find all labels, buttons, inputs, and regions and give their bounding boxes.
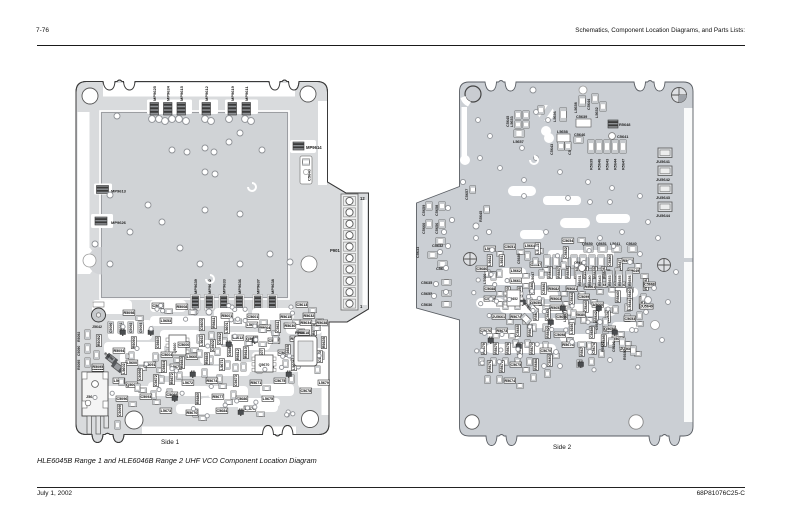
svg-text:L5660: L5660 [187, 355, 197, 359]
svg-text:Q5660: Q5660 [173, 343, 177, 354]
svg-text:12: 12 [360, 196, 365, 201]
svg-text:MP9639: MP9639 [193, 278, 198, 294]
svg-text:R5008: R5008 [176, 305, 187, 309]
svg-text:L5653: L5653 [510, 116, 514, 127]
svg-text:L5661: L5661 [511, 279, 521, 283]
svg-text:JU5642: JU5642 [656, 177, 671, 182]
svg-text:R5646: R5646 [598, 159, 602, 170]
svg-text:R5681: R5681 [567, 287, 578, 291]
svg-text:R5634: R5634 [300, 321, 312, 325]
svg-text:R5663: R5663 [180, 357, 184, 368]
svg-text:R5653: R5653 [608, 275, 612, 286]
svg-text:C5698: C5698 [555, 333, 566, 337]
svg-text:R5675: R5675 [494, 343, 498, 354]
svg-text:MP9615: MP9615 [179, 85, 184, 101]
svg-text:C5636: C5636 [421, 303, 432, 307]
svg-text:C5685: C5685 [517, 253, 521, 264]
svg-text:R5615: R5615 [280, 315, 291, 319]
svg-text:C5646: C5646 [574, 133, 585, 137]
svg-text:R5095: R5095 [93, 365, 104, 369]
svg-text:C5640: C5640 [626, 242, 637, 246]
svg-text:C5641: C5641 [617, 134, 629, 139]
svg-text:C5665: C5665 [516, 325, 520, 336]
svg-text:L5601: L5601 [225, 322, 229, 332]
svg-text:C5639: C5639 [576, 115, 587, 119]
svg-text:R5092: R5092 [97, 335, 101, 346]
svg-text:C5604: C5604 [161, 353, 173, 357]
svg-text:C5680: C5680 [608, 255, 612, 266]
svg-text:R5612: R5612 [236, 349, 240, 360]
svg-text:L5600: L5600 [127, 361, 137, 365]
svg-text:R5611: R5611 [212, 317, 216, 328]
svg-text:C5090: C5090 [77, 346, 81, 356]
svg-text:C5651: C5651 [505, 245, 516, 249]
svg-text:MP9613: MP9613 [111, 189, 127, 194]
svg-text:C5660: C5660 [156, 337, 160, 348]
svg-text:Side 1: Side 1 [161, 439, 180, 446]
svg-text:R5677: R5677 [212, 395, 223, 399]
svg-text:MP9638: MP9638 [270, 278, 275, 294]
svg-text:MP9632: MP9632 [207, 278, 212, 294]
svg-text:C5095: C5095 [138, 369, 142, 380]
svg-text:R5670: R5670 [530, 343, 534, 354]
svg-text:R5656: R5656 [628, 275, 632, 286]
svg-text:C5644: C5644 [587, 98, 591, 110]
svg-text:C5601: C5601 [247, 315, 258, 319]
svg-text:JU5643: JU5643 [656, 195, 671, 200]
svg-text:C5660: C5660 [422, 223, 426, 234]
svg-text:MP9612: MP9612 [204, 85, 209, 101]
svg-text:MP9633: MP9633 [222, 278, 227, 294]
svg-text:R5676: R5676 [488, 361, 492, 372]
svg-text:R5644: R5644 [614, 158, 618, 170]
svg-text:C5689: C5689 [590, 327, 594, 338]
svg-text:C5662: C5662 [218, 333, 222, 344]
svg-text:C5632: C5632 [432, 244, 443, 248]
svg-text:L5602: L5602 [122, 363, 126, 373]
svg-text:R5655: R5655 [618, 275, 622, 286]
svg-text:R5639: R5639 [590, 159, 594, 170]
svg-text:MP9614: MP9614 [306, 145, 322, 150]
svg-text:JU5644: JU5644 [656, 213, 671, 218]
svg-text:L5653: L5653 [161, 319, 171, 323]
svg-text:R5638: R5638 [317, 321, 328, 325]
svg-text:C5611: C5611 [276, 321, 280, 332]
svg-text:L5662: L5662 [488, 255, 492, 265]
svg-text:L5657: L5657 [563, 312, 567, 322]
svg-text:L5651: L5651 [500, 255, 504, 265]
svg-text:R5657: R5657 [557, 267, 561, 278]
svg-text:MP9619: MP9619 [230, 85, 235, 101]
svg-text:C5670: C5670 [541, 349, 552, 353]
svg-text:C5602: C5602 [211, 340, 215, 351]
svg-text:L5664: L5664 [525, 244, 535, 248]
svg-text:Side 2: Side 2 [553, 444, 572, 451]
svg-text:L5656: L5656 [553, 111, 557, 122]
svg-text:C5635: C5635 [421, 281, 432, 285]
svg-text:JU5641: JU5641 [656, 159, 671, 164]
svg-text:C5092: C5092 [129, 323, 133, 333]
svg-text:L5657: L5657 [513, 140, 524, 144]
svg-text:Q5650: Q5650 [582, 242, 593, 246]
svg-text:C5681: C5681 [542, 283, 546, 294]
svg-text:R5648: R5648 [619, 122, 631, 127]
svg-text:C5696: C5696 [612, 341, 616, 352]
svg-text:C5659: C5659 [422, 205, 426, 216]
svg-text:L5672: L5672 [183, 381, 193, 385]
svg-text:R5094: R5094 [113, 349, 125, 353]
svg-text:C5686: C5686 [477, 267, 488, 271]
svg-text:MP9625: MP9625 [152, 85, 157, 101]
svg-text:C5699: C5699 [579, 295, 590, 299]
svg-text:R5610: R5610 [244, 347, 248, 358]
svg-text:JU5640: JU5640 [640, 305, 652, 309]
svg-text:C5657: C5657 [465, 189, 469, 200]
svg-text:C5600: C5600 [178, 343, 189, 347]
svg-text:R5684: R5684 [534, 359, 538, 370]
svg-text:R5680: R5680 [588, 275, 592, 286]
svg-text:L5662: L5662 [511, 269, 521, 273]
svg-text:J5642: J5642 [92, 325, 102, 329]
svg-text:MP9611: MP9611 [244, 86, 249, 101]
svg-text:L5644: L5644 [628, 299, 632, 309]
svg-text:L5666: L5666 [483, 274, 487, 284]
svg-text:R5680: R5680 [196, 393, 200, 404]
svg-text:R5672: R5672 [170, 373, 174, 384]
svg-text:C5093: C5093 [140, 395, 151, 399]
svg-text:MP9626: MP9626 [111, 220, 127, 225]
svg-text:R5653: R5653 [551, 306, 562, 310]
svg-text:R5642: R5642 [601, 341, 605, 352]
svg-text:R5682: R5682 [549, 287, 560, 291]
svg-text:R5678: R5678 [506, 343, 510, 354]
svg-text:JU5661: JU5661 [492, 315, 505, 319]
svg-text:R5643: R5643 [598, 275, 602, 286]
svg-text:MP9624: MP9624 [166, 85, 171, 101]
svg-text:C5672: C5672 [154, 375, 158, 386]
svg-text:C5673: C5673 [234, 375, 238, 386]
svg-text:C5090: C5090 [109, 323, 113, 333]
svg-text:R5095: R5095 [77, 360, 81, 370]
svg-text:R5663: R5663 [551, 297, 562, 301]
svg-text:C5656: C5656 [435, 223, 439, 234]
svg-text:L5656: L5656 [570, 323, 574, 333]
svg-text:R5674: R5674 [511, 315, 522, 319]
svg-text:R5692: R5692 [623, 349, 627, 360]
svg-text:R5671: R5671 [250, 381, 261, 385]
svg-text:L5675: L5675 [263, 397, 273, 401]
svg-text:C5633: C5633 [416, 247, 420, 258]
svg-text:L5640: L5640 [628, 289, 632, 299]
svg-text:L5652: L5652 [595, 107, 599, 118]
svg-text:C5603: C5603 [200, 319, 204, 330]
svg-text:R5656: R5656 [566, 267, 570, 278]
svg-text:R5632: R5632 [303, 314, 314, 318]
svg-text:C5684: C5684 [216, 409, 228, 413]
svg-text:P902: P902 [295, 330, 305, 335]
svg-text:R5674: R5674 [505, 379, 516, 383]
svg-text:R5647: R5647 [622, 159, 626, 170]
svg-text:C5096: C5096 [116, 397, 127, 401]
svg-text:C5640: C5640 [584, 301, 588, 312]
svg-text:L5658: L5658 [574, 102, 578, 113]
svg-text:R5643: R5643 [606, 159, 610, 170]
svg-text:R5645: R5645 [479, 211, 483, 222]
svg-text:L5647: L5647 [531, 272, 535, 282]
svg-text:R5092: R5092 [77, 332, 81, 342]
svg-text:R5660: R5660 [205, 353, 209, 364]
svg-text:C5658: C5658 [435, 205, 439, 216]
svg-text:C5675: C5675 [511, 363, 522, 367]
svg-text:C5664: C5664 [570, 293, 574, 304]
svg-text:R5640: R5640 [616, 291, 620, 302]
svg-text:C5654: C5654 [562, 239, 574, 243]
svg-text:R5098: R5098 [123, 311, 134, 315]
svg-text:C5678: C5678 [301, 389, 312, 393]
svg-text:MP9637: MP9637 [256, 278, 261, 294]
svg-text:C5655: C5655 [421, 292, 432, 296]
svg-text:C5652: C5652 [564, 247, 568, 258]
svg-text:L5673: L5673 [161, 409, 171, 413]
svg-text:C5683: C5683 [548, 355, 552, 366]
svg-text:R5651: R5651 [578, 275, 582, 286]
svg-text:L5679: L5679 [319, 381, 329, 385]
svg-text:L5658: L5658 [557, 130, 568, 134]
svg-text:L5671: L5671 [220, 359, 224, 369]
svg-text:Q5670: Q5670 [259, 363, 270, 367]
svg-text:L5663: L5663 [200, 335, 204, 345]
svg-text:R5670: R5670 [186, 411, 197, 415]
svg-text:C5613: C5613 [296, 303, 307, 307]
svg-text:C5093: C5093 [139, 323, 143, 333]
svg-text:Q5651: Q5651 [596, 242, 607, 246]
svg-text:C5688: C5688 [485, 287, 496, 291]
svg-text:C5643: C5643 [550, 144, 554, 155]
svg-text:R5630: R5630 [284, 324, 295, 328]
svg-text:C5653: C5653 [625, 317, 636, 321]
svg-text:R5674: R5674 [206, 379, 218, 383]
svg-text:C5675: C5675 [274, 379, 285, 383]
svg-text:P901: P901 [330, 248, 340, 253]
svg-text:C5099: C5099 [118, 405, 122, 416]
svg-text:C5664: C5664 [162, 360, 166, 372]
svg-text:MP9636: MP9636 [237, 278, 242, 294]
svg-text:R5635: R5635 [322, 337, 326, 348]
